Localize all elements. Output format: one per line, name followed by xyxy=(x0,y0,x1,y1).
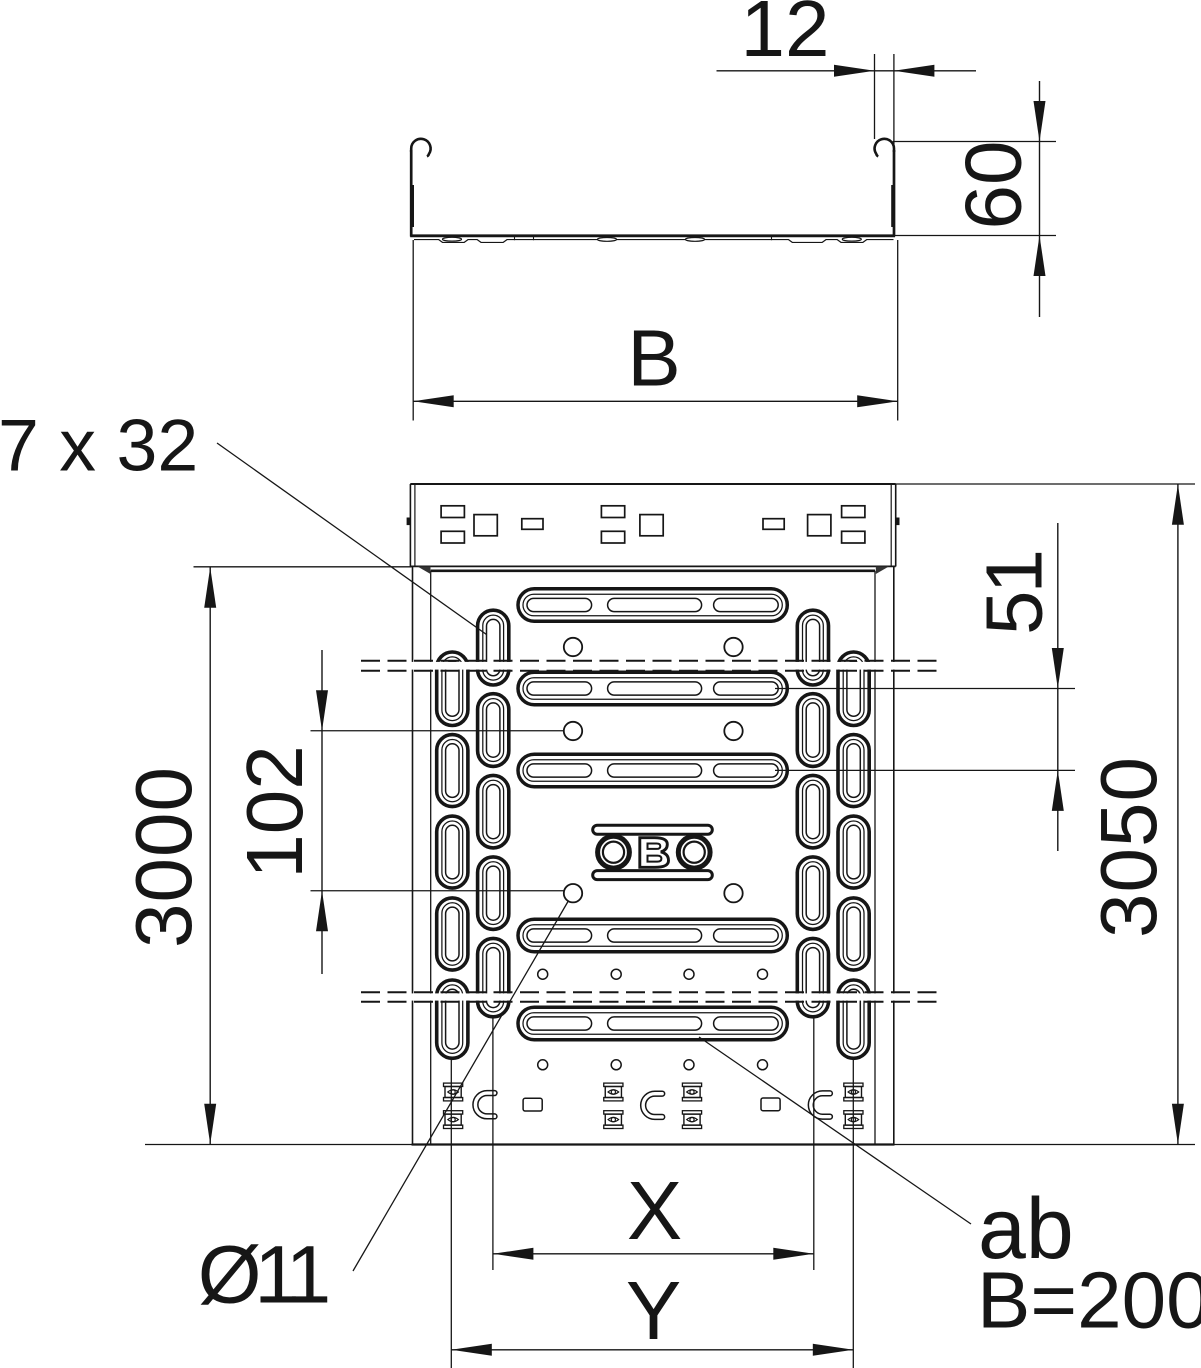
svg-text:60: 60 xyxy=(949,141,1038,230)
svg-text:B: B xyxy=(627,314,680,403)
svg-text:3050: 3050 xyxy=(1084,756,1173,938)
svg-text:3000: 3000 xyxy=(119,766,208,948)
svg-text:Ø11: Ø11 xyxy=(198,1230,332,1321)
svg-text:X: X xyxy=(627,1164,682,1257)
svg-text:Y: Y xyxy=(626,1264,681,1357)
svg-text:B=200: B=200 xyxy=(977,1256,1201,1345)
svg-text:102: 102 xyxy=(230,745,319,878)
svg-text:51: 51 xyxy=(970,552,1059,635)
svg-text:12: 12 xyxy=(741,0,830,73)
svg-text:7 x 32: 7 x 32 xyxy=(0,404,198,487)
